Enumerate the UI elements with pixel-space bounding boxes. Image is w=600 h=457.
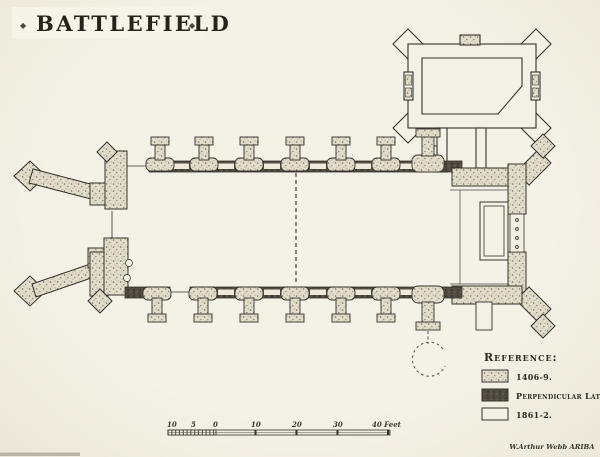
north-window-gap <box>218 164 234 170</box>
south-vestry-stub-1861 <box>476 302 492 330</box>
page-title: BATTLEFIELD <box>36 11 231 36</box>
legend-swatch-1406 <box>482 370 508 382</box>
title-block: ◆ BATTLEFIELD ◆ <box>12 7 231 39</box>
sw-stair-pier <box>104 238 128 295</box>
south-large-buttress <box>412 286 444 330</box>
south-window-gap <box>218 290 234 296</box>
north-window-gap <box>310 164 326 170</box>
scale-bar: 10 5 0 10 20 30 40 Feet <box>167 420 402 435</box>
north-window-gap <box>264 164 280 170</box>
nw-diagonal-buttress-shaft <box>29 169 98 200</box>
south-buttress <box>372 287 400 322</box>
legend-swatch-perpendicular <box>482 389 508 401</box>
north-window-gap <box>173 164 189 170</box>
south-buttress <box>143 287 171 322</box>
south-buttress <box>189 287 217 322</box>
nave-south-wall <box>125 286 492 330</box>
south-buttress <box>235 287 263 322</box>
tower-north-buttress <box>460 35 480 45</box>
scale-label: 30 <box>333 420 343 429</box>
north-buttress <box>146 137 174 171</box>
stair-newel-notch <box>126 260 133 267</box>
artist-signature: W.Arthur Webb ARIBA <box>509 443 594 451</box>
legend-label-1406: 1406-9. <box>516 372 552 382</box>
title-ornament-right-icon: ◆ <box>189 21 196 30</box>
east-wall-north-section <box>508 164 526 214</box>
tower-east-window-mullion <box>533 75 539 85</box>
north-buttress <box>372 137 400 171</box>
north-buttress <box>190 137 218 171</box>
legend-label-perpendicular: Perpendicular Late <box>516 391 600 401</box>
scale-label: 10 <box>167 420 177 429</box>
scanned-plan-sheet: ◆ BATTLEFIELD ◆ <box>0 0 600 457</box>
south-window-gap <box>310 290 326 296</box>
legend-swatch-1861 <box>482 408 508 420</box>
north-buttress <box>235 137 263 171</box>
west-front-walls <box>14 142 128 313</box>
scale-label: 5 <box>191 420 196 429</box>
north-buttress <box>327 137 355 171</box>
legend-heading: Reference: <box>484 351 558 364</box>
south-buttress <box>281 287 309 322</box>
scale-label: 0 <box>213 420 218 429</box>
stair-newel-notch <box>124 275 131 282</box>
south-window-gap <box>355 290 371 296</box>
chancel-walls <box>452 134 555 338</box>
chancel-south-wall <box>452 286 522 304</box>
stair-turret-dashed <box>412 331 445 376</box>
scale-label: 10 <box>251 420 261 429</box>
tower-west-window-mullion <box>406 75 412 85</box>
tower-west-window-mullion <box>406 88 412 97</box>
south-window-gap <box>264 290 280 296</box>
legend-label-1861: 1861-2. <box>516 410 552 420</box>
north-buttress <box>281 137 309 171</box>
tower-stair-passage-east-wall <box>476 128 486 168</box>
scan-edge-artifact <box>0 453 80 457</box>
south-buttress <box>327 287 355 322</box>
tower-plan <box>393 29 551 172</box>
tower-east-window-mullion <box>533 88 539 97</box>
altar-platform <box>480 202 508 260</box>
east-window-opening <box>510 214 524 252</box>
title-ornament-left-icon: ◆ <box>20 21 27 30</box>
north-window-gap <box>355 164 371 170</box>
floor-plan-drawing: ◆ BATTLEFIELD ◆ <box>0 0 600 457</box>
scale-label: 20 <box>291 420 302 429</box>
chancel-step-lines <box>450 190 508 284</box>
scale-end-label: 40 Feet <box>372 420 402 429</box>
legend-panel: Reference: 1406-9. Perpendicular Late 18… <box>482 351 600 420</box>
